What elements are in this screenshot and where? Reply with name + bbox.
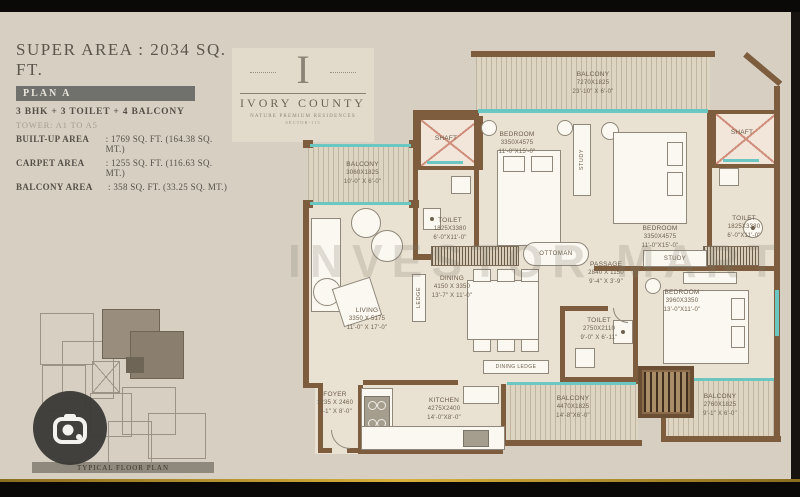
room-name: PASSAGE: [575, 260, 637, 269]
room-label-bedroom-1: BEDROOM 3350X4575 11'-0"X15'-0": [481, 130, 553, 157]
kitchen-sink: [463, 430, 489, 447]
dining-chair: [497, 269, 515, 282]
area-row-balcony: BALCONY AREA : 358 SQ. FT. (33.25 SQ. MT…: [16, 182, 231, 192]
pillow: [731, 298, 745, 320]
stair-treads: [644, 372, 688, 412]
window-strip: [310, 144, 411, 147]
wall: [560, 306, 565, 382]
ottoman-label: OTTOMAN: [539, 251, 572, 257]
plan-name-badge: PLAN A: [16, 86, 195, 101]
keyplan-core: [92, 361, 120, 393]
wardrobe-hatch: [703, 246, 759, 266]
pillow: [731, 326, 745, 348]
room-dim-mm: 3060X1825: [325, 169, 400, 178]
room-name: LIVING: [337, 306, 397, 315]
room-name: BALCONY: [325, 160, 400, 169]
keyplan-unit: [108, 421, 152, 463]
room-name: KITCHEN: [399, 396, 489, 405]
room-name: TOILET: [423, 216, 477, 225]
room-dim-ft: 23'-10" X 6'-0": [533, 88, 653, 97]
window-strip: [310, 202, 411, 205]
room-name: TOILET: [715, 214, 773, 223]
area-row-builtup: BUILT-UP AREA : 1769 SQ. FT. (164.38 SQ.…: [16, 134, 231, 154]
room-name: BALCONY: [533, 394, 613, 403]
room-name: DINING: [423, 274, 481, 283]
area-value: : 358 SQ. FT. (33.25 SQ. MT.): [108, 182, 227, 192]
window-strip: [775, 290, 779, 336]
room-dim-ft: 6'-0"X11'-0": [423, 234, 477, 243]
wall: [318, 448, 332, 453]
logo-ornament-left: [250, 72, 276, 73]
wall: [774, 380, 780, 442]
pillow: [667, 142, 683, 166]
wall: [413, 110, 418, 258]
study-label: STUDY: [664, 256, 686, 262]
screenshot-root: { "header": { "super_area": "SUPER AREA …: [0, 0, 800, 497]
wall: [303, 205, 309, 387]
wash-basin: [451, 176, 471, 194]
study-label: STUDY: [579, 149, 585, 170]
room-dim-mm: 2840 X 1150: [575, 269, 637, 278]
room-label-toilet-3: TOILET 2750X2110 9'-0" X 6'-11": [568, 316, 630, 343]
wall: [363, 380, 458, 385]
lounge-chair: [371, 230, 403, 262]
shelf: [683, 272, 737, 284]
room-dim-ft: 6'-0"X11'-0": [715, 232, 773, 241]
room-label-foyer: FOYER 1235 X 2460 4'-1" X 8'-0": [312, 390, 358, 417]
room-dim-mm: 3350 X 5175: [337, 315, 397, 324]
configuration-text: 3 BHK + 3 TOILET + 4 BALCONY: [16, 107, 231, 117]
bottom-letterbox-bar: [0, 482, 800, 497]
room-name: BEDROOM: [625, 224, 695, 233]
wash-basin: [575, 348, 595, 368]
room-dim-mm: 4275X2400: [399, 405, 489, 414]
top-letterbox-bar: [0, 0, 800, 12]
room-dim-mm: 3350X4575: [625, 233, 695, 242]
room-label-balcony-top: BALCONY 7270X1825 23'-10" X 6'-0": [533, 70, 653, 97]
floor-plan: OTTOMAN STUDY STUDY LEDGE DINING LEDGE B…: [295, 50, 790, 465]
dining-chair: [497, 339, 515, 352]
pillow: [531, 156, 553, 172]
ledge-label: LEDGE: [416, 287, 422, 308]
dining-chair: [521, 269, 539, 282]
area-value: : 1769 SQ. FT. (164.38 SQ. MT.): [106, 134, 231, 154]
plan-info-panel: SUPER AREA : 2034 SQ. FT. PLAN A 3 BHK +…: [16, 40, 231, 192]
room-dim-mm: 1825X3380: [423, 225, 477, 234]
room-dim-mm: 2760X1825: [685, 401, 755, 410]
area-label: BUILT-UP AREA: [16, 134, 106, 154]
window-strip: [723, 159, 759, 162]
room-name: BALCONY: [685, 392, 755, 401]
window-strip: [427, 161, 463, 164]
room-dim-mm: 4150 X 3350: [423, 283, 481, 292]
area-value: : 1255 SQ. FT. (116.63 SQ. MT.): [106, 158, 231, 178]
super-area-title: SUPER AREA : 2034 SQ. FT.: [16, 40, 231, 80]
tower-text: TOWER: A1 TO A5: [16, 120, 231, 130]
camera-icon: [51, 411, 89, 445]
room-label-kitchen: KITCHEN 4275X2400 14'-0"X8'-0": [399, 396, 489, 423]
room-label-toilet-1: TOILET 1825X3380 6'-0"X11'-0": [423, 216, 477, 243]
room-label-balcony-bottom-right: BALCONY 2760X1825 9'-1" X 6'-0": [685, 392, 755, 419]
shaft-right-label: SHAFT: [719, 128, 765, 137]
room-name: FOYER: [312, 390, 358, 399]
wash-basin: [719, 168, 739, 186]
dining-chair: [473, 339, 491, 352]
wall: [471, 51, 715, 57]
wall: [413, 110, 477, 116]
room-dim-mm: 1235 X 2460: [312, 399, 358, 408]
room-dim-mm: 3350X4575: [481, 139, 553, 148]
dining-ledge-box: DINING LEDGE: [483, 360, 549, 374]
side-table: [557, 120, 573, 136]
room-dim-ft: 9'-0" X 6'-11": [568, 334, 630, 343]
room-dim-ft: 4'-1" X 8'-0": [312, 408, 358, 417]
room-name: SHAFT: [719, 128, 765, 137]
room-label-balcony-left: BALCONY 3060X1825 10'-0" X 6'-0": [325, 160, 400, 187]
wall: [503, 440, 642, 446]
room-dim-ft: 13'-0"X11'-0": [647, 306, 717, 315]
room-dim-ft: 11'-0"X15'-0": [481, 148, 553, 157]
room-label-living: LIVING 3350 X 5175 11'-0" X 17'-0": [337, 306, 397, 333]
pillow: [503, 156, 525, 172]
room-name: BALCONY: [533, 70, 653, 79]
wall: [661, 436, 781, 442]
keyplan-unit: [148, 413, 206, 459]
wardrobe-hatch: [431, 246, 519, 266]
room-label-bedroom-2: BEDROOM 3350X4575 11'-0"X15'-0": [625, 224, 695, 251]
room-name: TOILET: [568, 316, 630, 325]
wall-diagonal: [743, 52, 782, 86]
pillow: [667, 172, 683, 196]
room-name: BEDROOM: [647, 288, 717, 297]
shaft-left-label: SHAFT: [423, 134, 469, 143]
room-dim-ft: 9'-1" X 6'-0": [685, 410, 755, 419]
area-row-carpet: CARPET AREA : 1255 SQ. FT. (116.63 SQ. M…: [16, 158, 231, 178]
room-label-dining: DINING 4150 X 3350 13'-7" X 11'-0": [423, 274, 481, 301]
room-dim-mm: 1825X3380: [715, 223, 773, 232]
room-label-toilet-2: TOILET 1825X3380 6'-0"X11'-0": [715, 214, 773, 241]
room-dim-ft: 14'-0"X8'-0": [399, 414, 489, 423]
room-dim-ft: 11'-0"X15'-0": [625, 242, 695, 251]
room-dim-mm: 3960X3350: [647, 297, 717, 306]
room-dim-ft: 14'-8"X6'-0": [533, 412, 613, 421]
wall: [707, 110, 712, 268]
room-label-passage: PASSAGE 2840 X 1150 9'-4" X 3'-9": [575, 260, 637, 287]
room-dim-ft: 11'-0" X 17'-0": [337, 324, 397, 333]
room-label-balcony-bottom: BALCONY 4470X1825 14'-8"X6'-0": [533, 394, 613, 421]
wall: [560, 306, 608, 311]
study-strip: STUDY: [573, 124, 591, 196]
camera-lens-button[interactable]: [33, 391, 107, 465]
study-box: STUDY: [643, 250, 707, 267]
right-edge-shadow: [791, 12, 800, 479]
room-dim-ft: 13'-7" X 11'-0": [423, 292, 481, 301]
wall: [774, 86, 780, 268]
keyplan-unit-highlighted: [126, 357, 144, 373]
room-label-bedroom-3: BEDROOM 3960X3350 13'-0"X11'-0": [647, 288, 717, 315]
window-strip: [478, 109, 708, 113]
room-name: BEDROOM: [481, 130, 553, 139]
room-dim-ft: 9'-4" X 3'-9": [575, 278, 637, 287]
room-name: SHAFT: [423, 134, 469, 143]
room-dim-mm: 7270X1825: [533, 79, 653, 88]
area-label: CARPET AREA: [16, 158, 106, 178]
dining-chair: [521, 339, 539, 352]
room-dim-mm: 4470X1825: [533, 403, 613, 412]
dining-ledge-label: DINING LEDGE: [496, 364, 537, 370]
window-strip: [507, 382, 636, 385]
area-label: BALCONY AREA: [16, 182, 108, 192]
room-dim-ft: 10'-0" X 6'-0": [325, 178, 400, 187]
room-dim-mm: 2750X2110: [568, 325, 630, 334]
